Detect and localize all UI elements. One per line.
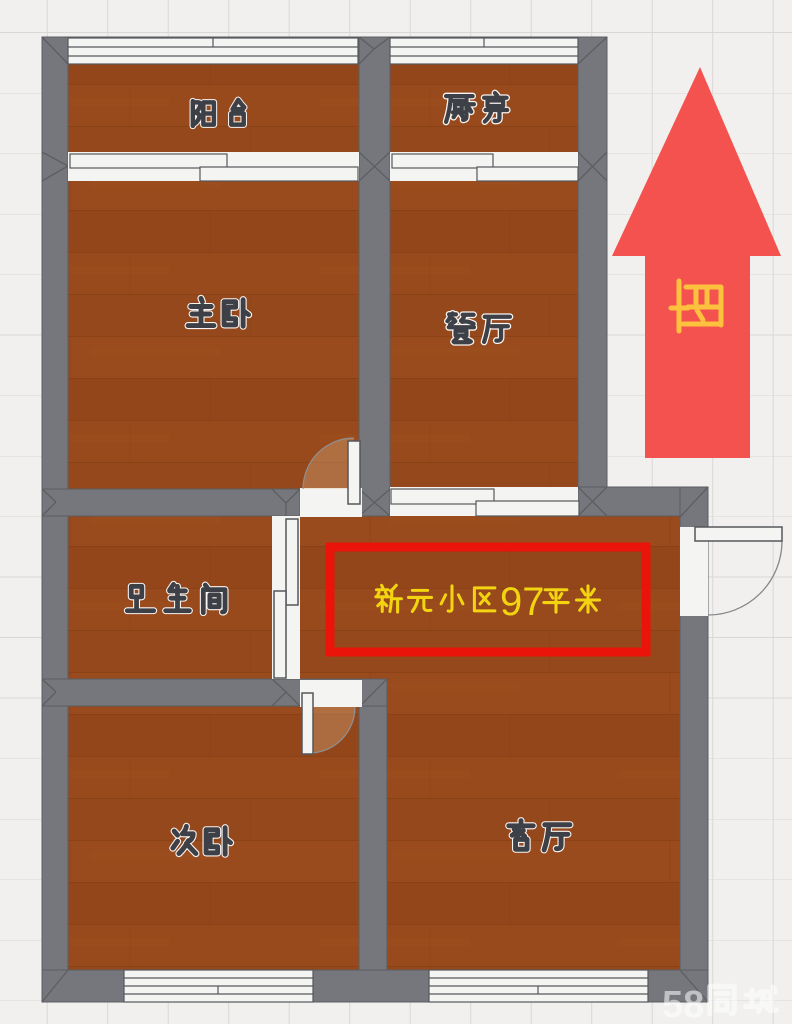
svg-text:58: 58	[662, 984, 704, 1024]
svg-text:97: 97	[500, 580, 545, 624]
